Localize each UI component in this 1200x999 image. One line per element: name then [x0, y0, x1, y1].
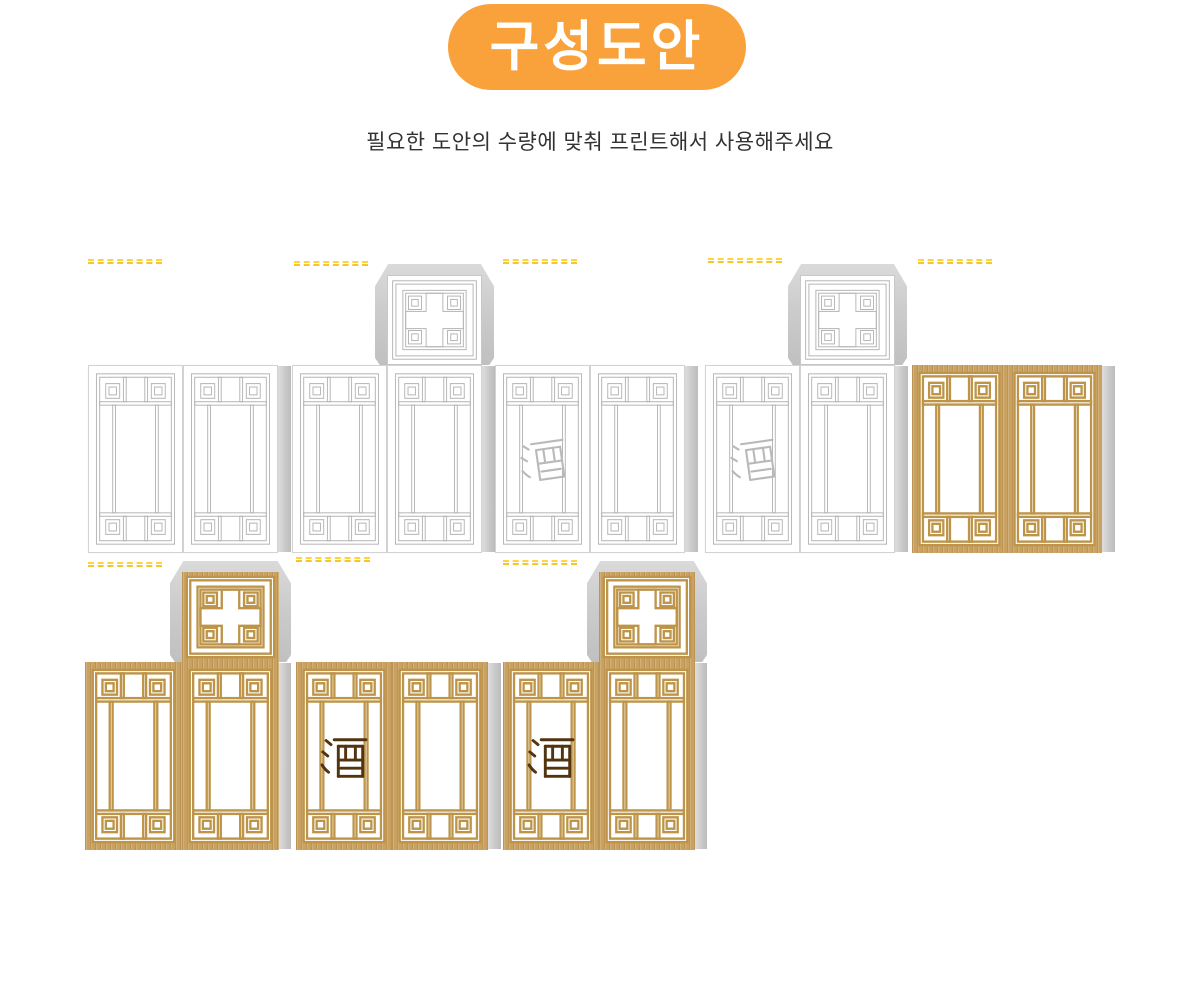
glue-tab [488, 663, 501, 849]
watermark-dash-line [503, 563, 577, 565]
watermark-dash-line [503, 262, 577, 264]
door-panel [296, 662, 392, 850]
door-panel [88, 365, 183, 553]
panel-lattice [184, 366, 277, 552]
door-panel [85, 662, 182, 850]
door-panel [705, 365, 800, 553]
lid-lattice [801, 276, 894, 364]
door-panel [392, 662, 488, 850]
watermark-dash-line [918, 262, 992, 264]
lid-panel [387, 275, 482, 365]
panel-lattice [392, 662, 488, 850]
print-template-sheet: 구성도안 필요한 도안의 수량에 맞춰 프린트해서 사용해주세요 [0, 0, 1200, 999]
watermark-dash-line [296, 557, 370, 559]
door-panel [503, 662, 599, 850]
door-panel [590, 365, 685, 553]
watermark-dash-line [294, 264, 368, 266]
watermark-dash-line [88, 565, 162, 567]
panel-lattice [801, 366, 894, 552]
panel-lattice [89, 366, 182, 552]
watermark-dashes [918, 259, 992, 265]
panel-lattice [599, 662, 695, 850]
lid-panel [182, 572, 279, 662]
title-badge: 구성도안 [448, 4, 746, 90]
door-panel [183, 365, 278, 553]
glue-tab [685, 366, 698, 552]
jiu-glyph [318, 730, 370, 782]
lid-lattice [599, 572, 695, 662]
door-panel [292, 365, 387, 553]
watermark-dashes [503, 259, 577, 265]
jiu-glyph [513, 430, 572, 489]
watermark-dash-line [296, 560, 370, 562]
panel-lattice [912, 365, 1007, 553]
glue-tab [895, 366, 908, 552]
glue-tab [482, 366, 495, 552]
watermark-dash-line [88, 262, 162, 264]
panel-lattice [182, 662, 279, 850]
panel-lattice [1007, 365, 1102, 553]
door-panel [800, 365, 895, 553]
watermark-dash-line [503, 560, 577, 562]
panel-lattice [85, 662, 182, 850]
watermark-dashes [503, 560, 577, 566]
panel-lattice [591, 366, 684, 552]
lid-lattice [182, 572, 279, 662]
lid-panel [599, 572, 695, 662]
page-title: 구성도안 [490, 20, 705, 74]
watermark-dashes [296, 557, 370, 563]
glue-tab [279, 663, 291, 849]
door-panel [495, 365, 590, 553]
glue-tab [1102, 366, 1115, 552]
glue-tab [278, 366, 291, 552]
door-panel [912, 365, 1007, 553]
lid-lattice [388, 276, 481, 364]
instruction-text: 필요한 도안의 수량에 맞춰 프린트해서 사용해주세요 [0, 126, 1200, 156]
panel-lattice [388, 366, 481, 552]
door-panel [1007, 365, 1102, 553]
watermark-dash-line [503, 259, 577, 261]
watermark-dash-line [294, 261, 368, 263]
watermark-dash-line [708, 258, 782, 260]
lid-panel [800, 275, 895, 365]
watermark-dashes [708, 258, 782, 264]
glue-tab [695, 663, 707, 849]
watermark-dashes [294, 261, 368, 267]
watermark-dash-line [88, 259, 162, 261]
watermark-dash-line [88, 562, 162, 564]
jiu-glyph [525, 730, 577, 782]
door-panel [599, 662, 695, 850]
watermark-dash-line [708, 261, 782, 263]
panel-lattice [293, 366, 386, 552]
watermark-dash-line [918, 259, 992, 261]
watermark-dashes [88, 259, 162, 265]
door-panel [387, 365, 482, 553]
watermark-dashes [88, 562, 162, 568]
door-panel [182, 662, 279, 850]
jiu-glyph [723, 430, 782, 489]
